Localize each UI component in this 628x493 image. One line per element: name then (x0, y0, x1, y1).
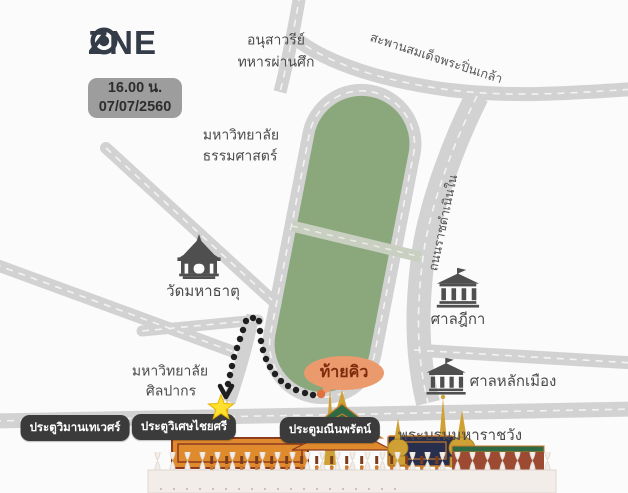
label-silpakorn-line1: มหาวิทยาลัย (132, 363, 208, 378)
map-canvas: Z NE 16.00 น. 07/07/2560 อนุสาวรีย์ ทหาร… (0, 0, 628, 493)
label-supreme-court: ศาลฎีกา (431, 312, 486, 329)
zone-logo: Z NE (88, 24, 157, 62)
timestamp-badge: 16.00 น. 07/07/2560 (88, 78, 182, 118)
gate-badge-manee-nopparat: ประตูมณีนพรัตน์ (280, 417, 380, 443)
circle-dot-icon (89, 26, 119, 56)
gate-badge-wiset-chaisri: ประตูวิเศษไชยศรี (132, 414, 236, 440)
queue-end-label: ท้ายคิว (320, 364, 369, 382)
timestamp-time: 16.00 น. (108, 79, 162, 98)
label-grand-palace: พระบรมมหาราชวัง (398, 428, 522, 445)
timestamp-date: 07/07/2560 (99, 98, 172, 117)
label-veterans-monument-line2: ทหารผ่านศึก (238, 54, 315, 69)
gate-badge-wiman-thewet: ประตูวิมานเทเวศร์ (21, 415, 130, 441)
label-thammasat-line1: มหาวิทยาลัย (203, 127, 279, 142)
label-wat-mahathat: วัดมหาธาตุ (166, 284, 240, 301)
courthouse-icon-supreme-court (437, 268, 479, 308)
label-veterans-monument-line1: อนุสาวรีย์ (247, 32, 305, 47)
label-city-pillar-shrine: ศาลหลักเมือง (470, 374, 557, 391)
label-silpakorn-line2: ศิลปากร (146, 383, 196, 398)
label-thammasat-line2: ธรรมศาสตร์ (203, 148, 278, 163)
